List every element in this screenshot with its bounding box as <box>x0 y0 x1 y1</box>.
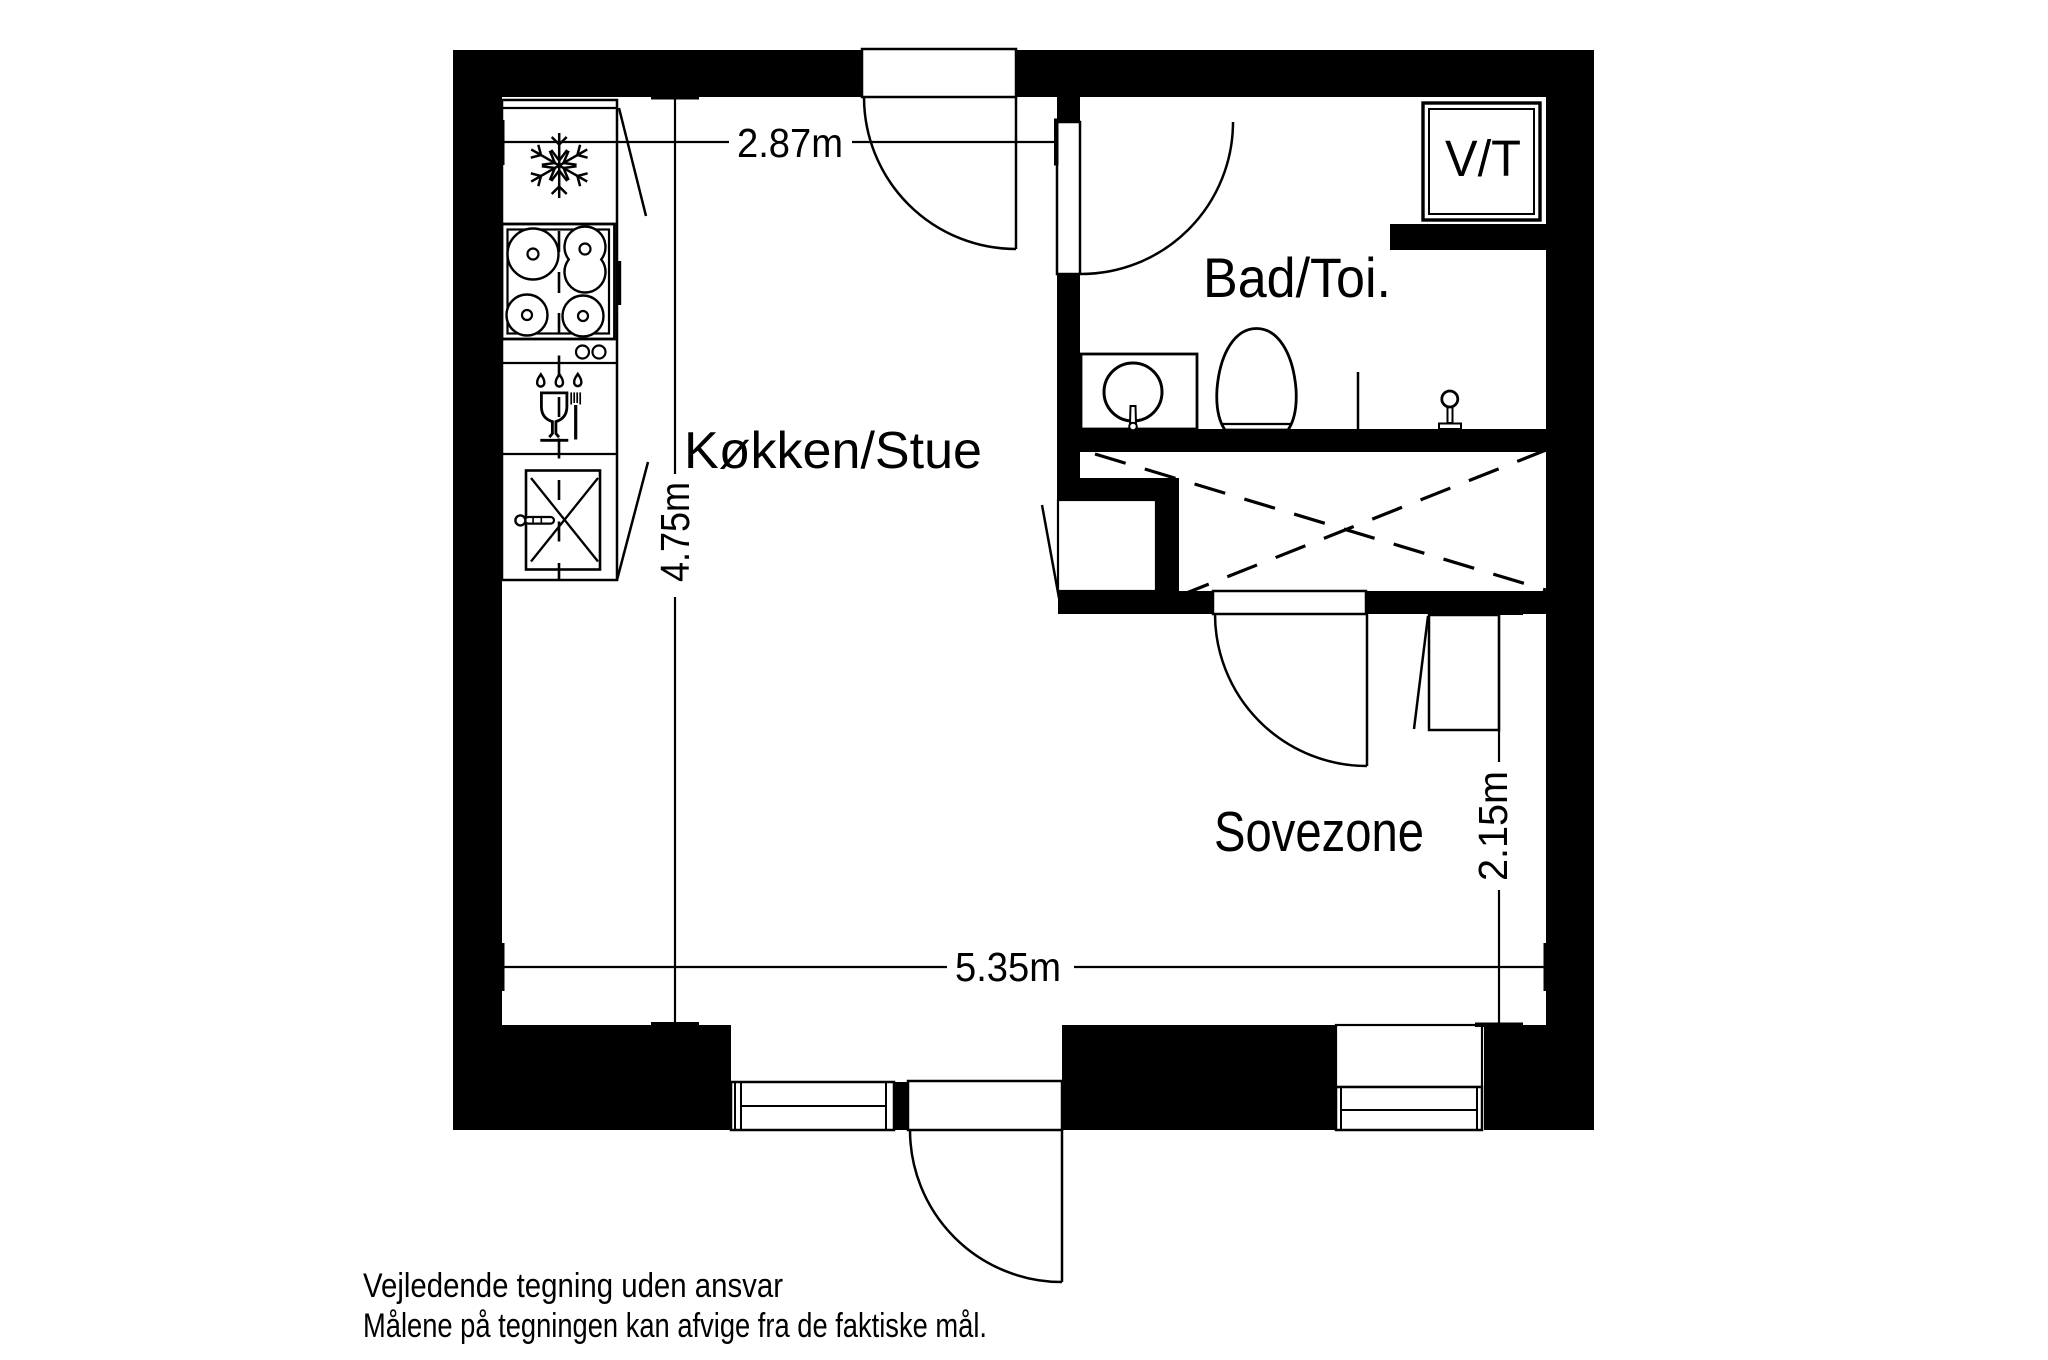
svg-text:Målene på tegningen kan afvige: Målene på tegningen kan afvige fra de fa… <box>363 1307 987 1345</box>
svg-text:Sovezone: Sovezone <box>1214 800 1424 864</box>
svg-text:Vejledende tegning uden ansvar: Vejledende tegning uden ansvar <box>363 1267 783 1305</box>
svg-text:4.75m: 4.75m <box>652 482 698 582</box>
svg-text:Køkken/Stue: Køkken/Stue <box>684 422 982 480</box>
svg-text:V/T: V/T <box>1445 130 1521 187</box>
svg-text:Bad/Toi.: Bad/Toi. <box>1203 246 1391 309</box>
svg-text:2.15m: 2.15m <box>1470 771 1516 881</box>
svg-text:5.35m: 5.35m <box>955 944 1061 990</box>
svg-text:2.87m: 2.87m <box>737 120 843 166</box>
